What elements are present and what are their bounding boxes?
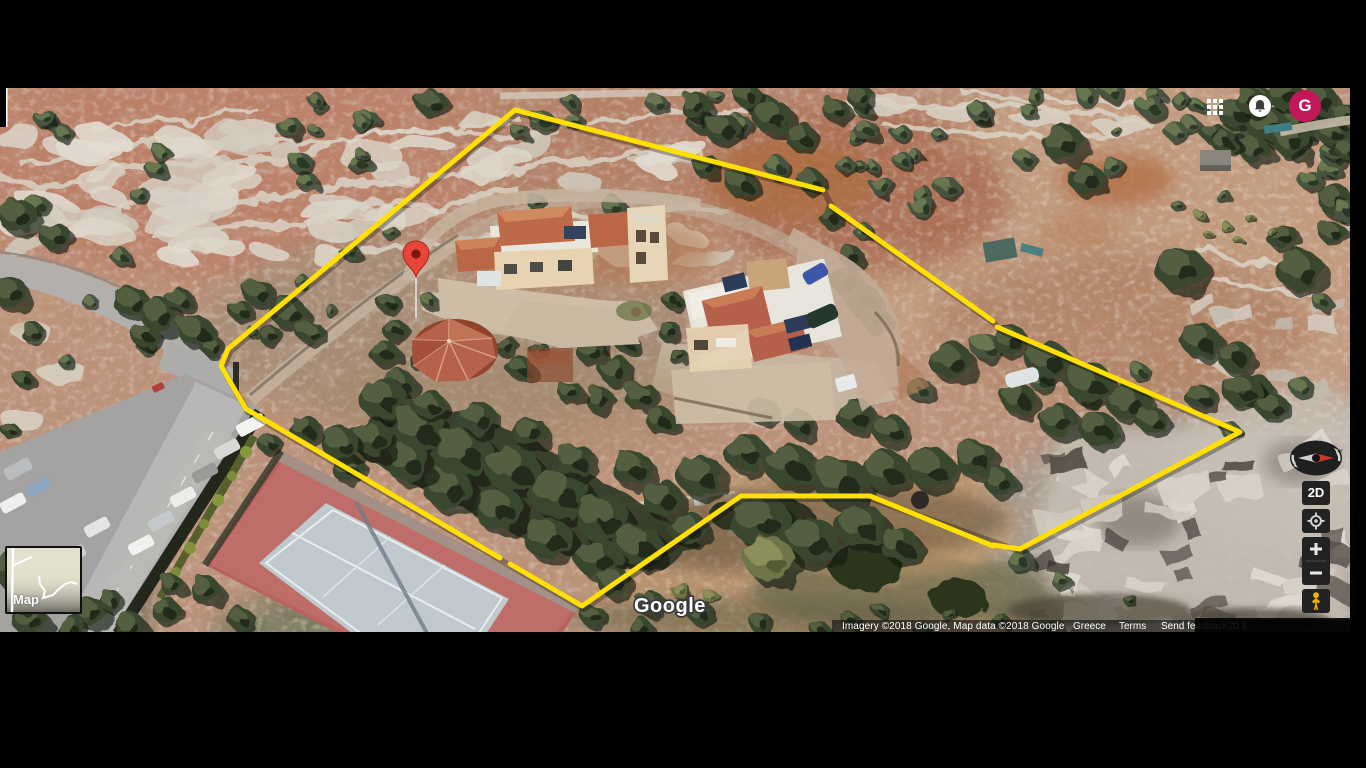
svg-text:Google: Google: [634, 595, 706, 617]
